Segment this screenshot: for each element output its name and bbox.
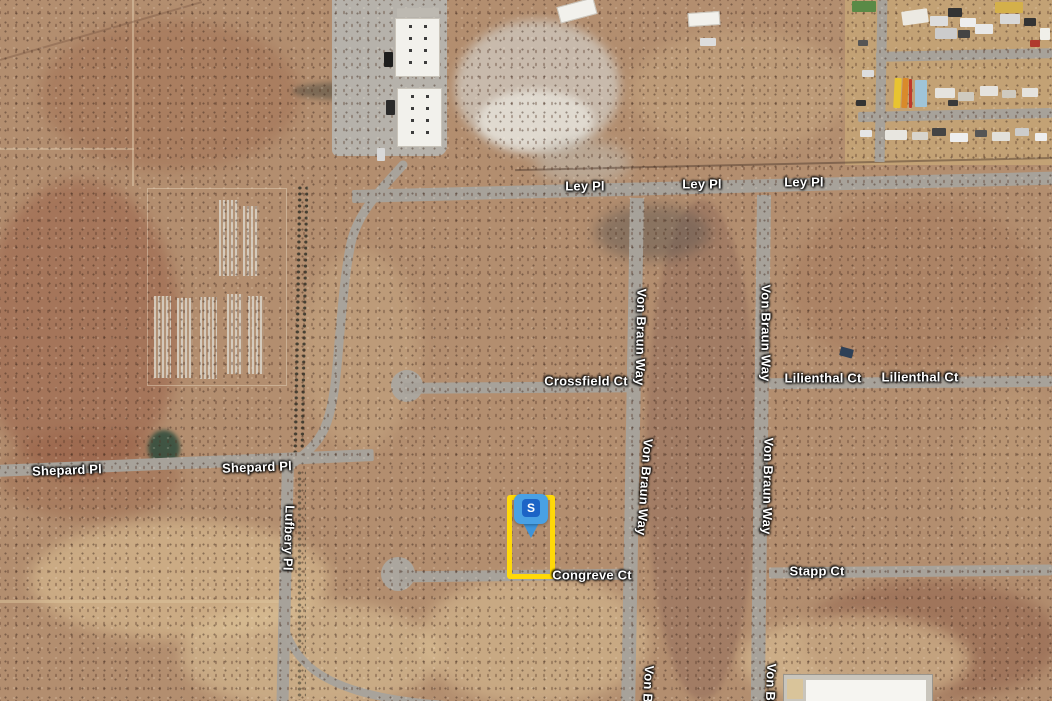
street-label-von-braun-way-se: Von Braun Way — [760, 437, 777, 534]
street-label-ley-pl-2: Ley Pl — [682, 177, 722, 192]
building — [395, 18, 440, 77]
marker-letter-badge: S — [522, 499, 540, 517]
vehicle — [958, 30, 970, 38]
vehicle — [932, 128, 946, 136]
street-label-crossfield-ct: Crossfield Ct — [544, 374, 628, 389]
marker-balloon: S — [514, 494, 548, 524]
street-label-shepard-pl-1: Shepard Pl — [32, 461, 102, 478]
storage-container — [909, 79, 912, 108]
street-label-ley-pl-3: Ley Pl — [784, 175, 824, 190]
vehicle — [1035, 133, 1047, 141]
vehicle — [992, 132, 1010, 141]
vehicle — [856, 100, 866, 106]
vehicle — [948, 100, 958, 106]
vehicle — [1015, 128, 1029, 136]
vehicle — [862, 70, 874, 77]
building — [397, 88, 442, 147]
building — [783, 674, 933, 701]
vehicle — [930, 16, 948, 26]
trailer — [700, 38, 716, 46]
vehicle — [384, 52, 393, 67]
street-label-von-braun-way-nw: Von Braun Way — [633, 288, 650, 385]
building-unit — [787, 679, 803, 699]
vehicle — [960, 18, 976, 27]
street-label-ley-pl-1: Ley Pl — [565, 179, 605, 194]
property-marker[interactable]: S — [514, 494, 550, 542]
vehicle — [950, 133, 968, 142]
vehicle — [912, 132, 928, 140]
vehicle — [975, 130, 987, 137]
storage-container — [915, 80, 927, 107]
street-label-lilienthal-ct-2: Lilienthal Ct — [882, 370, 959, 385]
street-label-lilienthal-ct-1: Lilienthal Ct — [785, 371, 862, 386]
street-label-shepard-pl-2: Shepard Pl — [222, 458, 292, 475]
vehicle — [1000, 14, 1020, 24]
vehicle — [1030, 40, 1040, 47]
vehicle — [1024, 18, 1036, 26]
vehicle — [958, 92, 974, 101]
street-label-lufbery-pl: Lufbery Pl — [280, 505, 297, 571]
vehicle — [948, 8, 962, 17]
vehicle — [1002, 90, 1016, 98]
street-label-stapp-ct: Stapp Ct — [789, 564, 844, 579]
street-label-von-braun-way-ne: Von Braun Way — [759, 284, 774, 381]
storage-container — [995, 2, 1023, 13]
winding-road-path — [289, 165, 403, 467]
vehicle — [858, 40, 868, 46]
vehicle — [860, 130, 872, 137]
marker-letter: S — [527, 501, 535, 515]
storage-container — [852, 1, 876, 12]
trailer — [688, 11, 721, 27]
vehicle — [377, 148, 385, 161]
vehicle — [1022, 88, 1038, 97]
building-roof — [806, 680, 926, 701]
street-label-congreve-ct: Congreve Ct — [552, 568, 632, 583]
map-canvas[interactable]: S Ley Pl Ley Pl Ley Pl Crossfield Ct Lil… — [0, 0, 1052, 701]
vehicle — [980, 86, 998, 96]
vehicle — [885, 130, 907, 140]
vehicle — [386, 100, 395, 115]
vehicle — [975, 24, 993, 34]
street-label-von-braun-way-bottom-e: Von Braun Way — [761, 663, 779, 701]
vehicle — [935, 88, 955, 98]
vehicle — [935, 28, 957, 39]
bottom-road-path — [284, 626, 460, 701]
vehicle — [1040, 28, 1050, 40]
building-roof-ridge — [397, 8, 439, 18]
